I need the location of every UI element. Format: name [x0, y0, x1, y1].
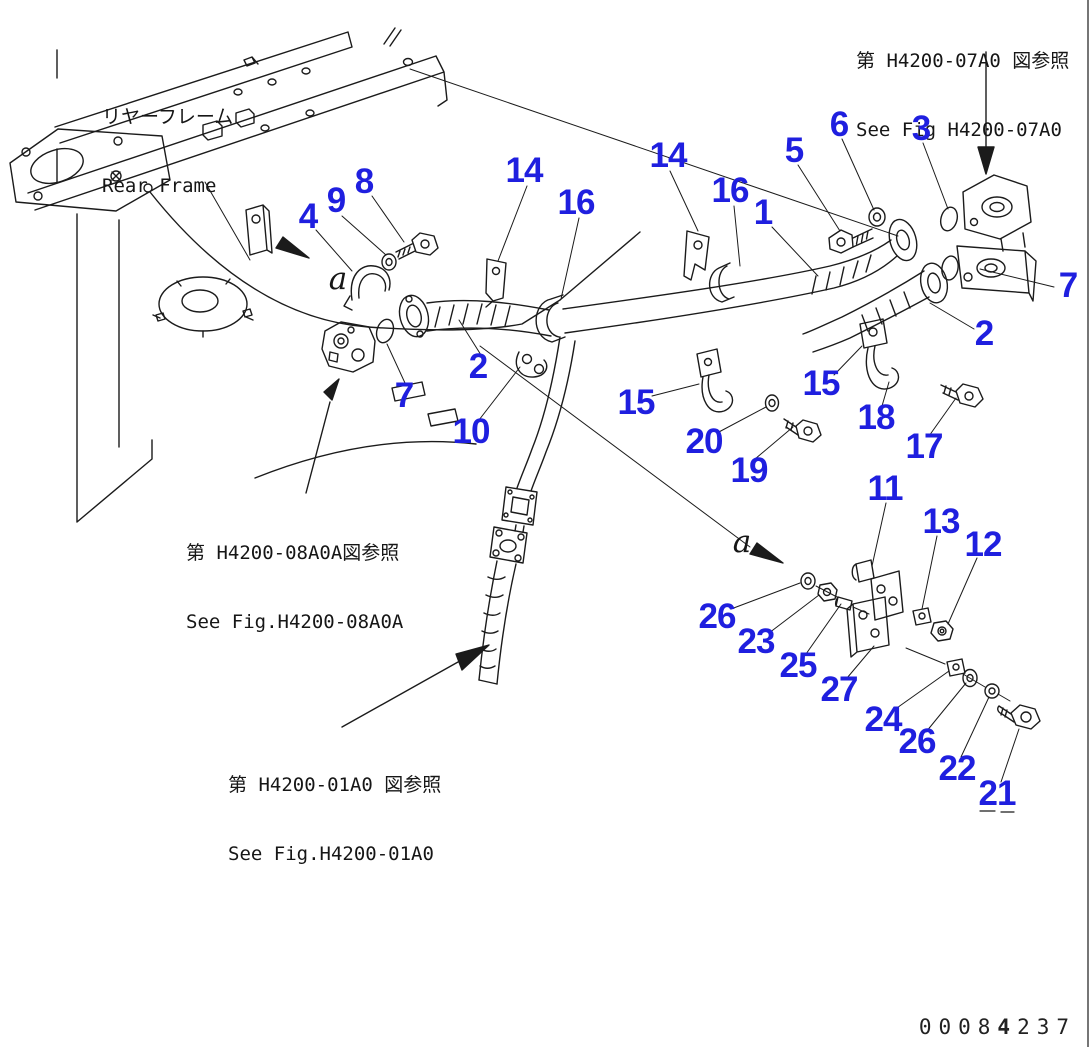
- callout-1-7: 1: [754, 193, 772, 233]
- callout-18-20: 18: [858, 398, 895, 438]
- callout-8-0: 8: [355, 162, 373, 202]
- callout-27-28: 27: [821, 670, 858, 710]
- rear-frame-label-en: Rear Frame: [102, 175, 233, 198]
- callout-25-27: 25: [780, 646, 817, 686]
- callout-12-24: 12: [965, 525, 1002, 565]
- callout-4-2: 4: [299, 197, 317, 237]
- callout-6-9: 6: [830, 105, 848, 145]
- callout-2-12: 2: [975, 314, 993, 354]
- callout-13-23: 13: [923, 502, 960, 542]
- rear-frame-label: リヤーフレーム Rear Frame: [102, 60, 233, 244]
- callout-11-22: 11: [868, 469, 903, 509]
- view-a-arrow-left: [276, 237, 309, 258]
- callout-20-17: 20: [686, 422, 723, 462]
- view-letter-a-1: a: [733, 524, 751, 560]
- fitting-blocks-drawing: [322, 175, 1036, 372]
- ref-fig-h4200-01a0: 第 H4200-01A0 図参照 See Fig.H4200-01A0: [228, 728, 441, 912]
- doc-number-bold: 4: [997, 1015, 1017, 1039]
- ref-fig-h4200-08a0a-jp: 第 H4200-08A0A図参照: [186, 542, 403, 565]
- callout-9-1: 9: [327, 181, 345, 221]
- callout-5-8: 5: [785, 131, 803, 171]
- ref-fig-h4200-07a0: 第 H4200-07A0 図参照 See Fig H4200-07A0: [856, 4, 1069, 188]
- callout-10-15: 10: [453, 412, 490, 452]
- ref-fig-h4200-01a0-jp: 第 H4200-01A0 図参照: [228, 774, 441, 797]
- callout-7-11: 7: [1059, 266, 1077, 306]
- ref-fig-h4200-08a0a-en: See Fig.H4200-08A0A: [186, 611, 403, 634]
- view-letter-a-0: a: [329, 261, 347, 297]
- rear-frame-label-jp: リヤーフレーム: [102, 106, 233, 129]
- callout-21-32: 21: [979, 774, 1016, 814]
- ref-fig-h4200-01a0-en: See Fig.H4200-01A0: [228, 843, 441, 866]
- view-a-arrow-bottom: [750, 543, 783, 563]
- callout-26-25: 26: [699, 597, 736, 637]
- parts-diagram-page: リヤーフレーム Rear Frame 第 H4200-07A0 図参照 See …: [0, 0, 1090, 1047]
- callout-16-4: 16: [558, 183, 595, 223]
- callout-22-31: 22: [939, 749, 976, 789]
- callout-7-14: 7: [395, 376, 413, 416]
- ref-fig-h4200-07a0-jp: 第 H4200-07A0 図参照: [856, 50, 1069, 73]
- callout-16-6: 16: [712, 171, 749, 211]
- doc-number-prefix: 0008: [919, 1015, 998, 1039]
- callout-3-10: 3: [912, 109, 930, 149]
- callout-26-30: 26: [899, 722, 936, 762]
- ref-fig-h4200-07a0-en: See Fig H4200-07A0: [856, 119, 1069, 142]
- callout-15-16: 15: [618, 383, 655, 423]
- ref-fig-h4200-08a0a: 第 H4200-08A0A図参照 See Fig.H4200-08A0A: [186, 496, 403, 680]
- callout-14-5: 14: [650, 136, 687, 176]
- callout-23-26: 23: [738, 622, 775, 662]
- callout-19-18: 19: [731, 451, 768, 491]
- callout-17-21: 17: [906, 427, 943, 467]
- doc-number: 00084237: [919, 1015, 1076, 1039]
- callout-15-19: 15: [803, 364, 840, 404]
- doc-number-suffix: 237: [1017, 1015, 1076, 1039]
- callout-2-13: 2: [469, 347, 487, 387]
- callout-24-29: 24: [865, 700, 902, 740]
- callout-14-3: 14: [506, 151, 543, 191]
